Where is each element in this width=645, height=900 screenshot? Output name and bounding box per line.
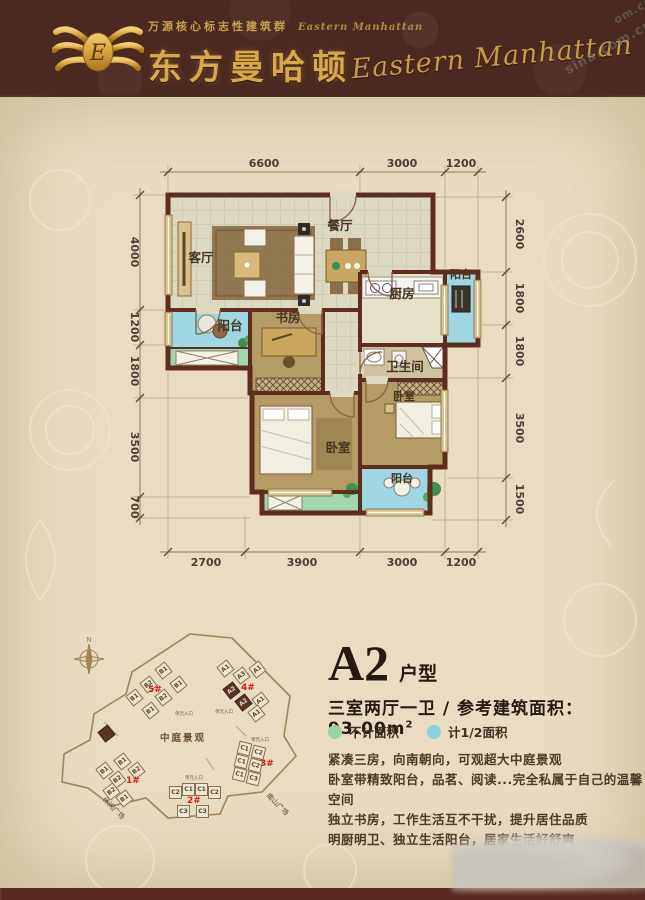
site-roads: [104, 722, 246, 770]
dim-right-2: 1800: [513, 283, 526, 314]
courtyard-label: 中庭景观: [160, 732, 206, 744]
label-dining: 餐厅: [326, 218, 353, 233]
label-kitchen: 厨房: [389, 286, 414, 301]
dim-left-5: 700: [128, 496, 141, 519]
header-banner: E 万源核心标志性建筑群Eastern Manhattan 东方曼哈顿 East…: [0, 0, 645, 97]
legend: 不计面积 计1/2面积: [328, 722, 507, 741]
sofa-set: [212, 223, 315, 307]
label-balcony-left: 阳台: [217, 318, 242, 333]
label-study: 书房: [275, 310, 300, 325]
dim-bottom-1: 2700: [191, 556, 222, 569]
legend-label: 不计面积: [349, 722, 399, 741]
dim-top-1: 6600: [249, 157, 280, 170]
dim-right-5: 1500: [513, 484, 526, 515]
legend-item-half: 计1/2面积: [427, 722, 507, 741]
street-label-left: 休闲广场: [101, 795, 127, 821]
brand-tagline-script: Eastern Manhattan: [298, 22, 423, 33]
dim-bottom-2: 3900: [287, 556, 318, 569]
description-line: 卧室带精致阳台，品茗、阅读...完全私属于自己的温馨空间: [328, 770, 645, 810]
dim-right-4: 3500: [513, 413, 526, 444]
dim-top-3: 1200: [446, 157, 477, 170]
unit-type-title: A2户型: [328, 638, 437, 688]
dim-bottom-3: 3000: [387, 556, 418, 569]
spec-separator: /: [436, 699, 457, 719]
label-living: 客厅: [187, 250, 214, 265]
brand-tagline: 万源核心标志性建筑群: [148, 20, 288, 33]
dim-right-1: 2600: [513, 219, 526, 250]
spec-rooms: 三室两厅一卫: [328, 699, 436, 719]
spec-area-label: 参考建筑面积：: [457, 699, 583, 719]
label-bedroom-right: 卧室: [393, 389, 415, 403]
compass-icon: N: [74, 636, 104, 674]
legend-dot-blue: [427, 725, 441, 739]
label-bath: 卫生间: [386, 359, 424, 374]
dim-left-2: 1200: [128, 312, 141, 343]
brand-logo-icon: E: [52, 14, 144, 84]
blurred-watermark-blob: [452, 834, 645, 892]
legend-item-excluded: 不计面积: [328, 722, 399, 741]
dim-top-2: 3000: [387, 157, 418, 170]
dim-right-3: 1800: [513, 336, 526, 367]
dim-left-4: 3500: [128, 432, 141, 463]
logo-letter: E: [89, 41, 106, 66]
label-balcony-right: 阳台: [450, 267, 472, 281]
site-plan: N 中庭景观 休闲广场 南山广场: [50, 625, 310, 830]
unit-type-suffix: 户型: [399, 663, 437, 685]
poster-page: E 万源核心标志性建筑群Eastern Manhattan 东方曼哈顿 East…: [0, 0, 645, 900]
legend-label: 计1/2面积: [448, 722, 507, 741]
floor-plan: 客厅 餐厅 厨房 阳台 阳台 书房 卫生间 卧室 卧室 阳台: [110, 140, 550, 580]
street-label-right: 南山广场: [265, 791, 291, 817]
dim-bottom-4: 1200: [446, 556, 477, 569]
description-line: 紧凑三房，向南朝向，可观超大中庭景观: [328, 750, 645, 770]
dim-left-1: 4000: [128, 237, 141, 268]
description-line: 独立书房，工作生活互不干扰，提升居住品质: [328, 810, 645, 830]
compass-n-label: N: [86, 636, 91, 644]
label-balcony-bottom: 阳台: [391, 471, 413, 485]
label-bedroom-mid: 卧室: [325, 440, 351, 455]
legend-dot-green: [328, 725, 342, 739]
dim-left-3: 1800: [128, 356, 141, 387]
unit-type-code: A2: [328, 635, 389, 691]
